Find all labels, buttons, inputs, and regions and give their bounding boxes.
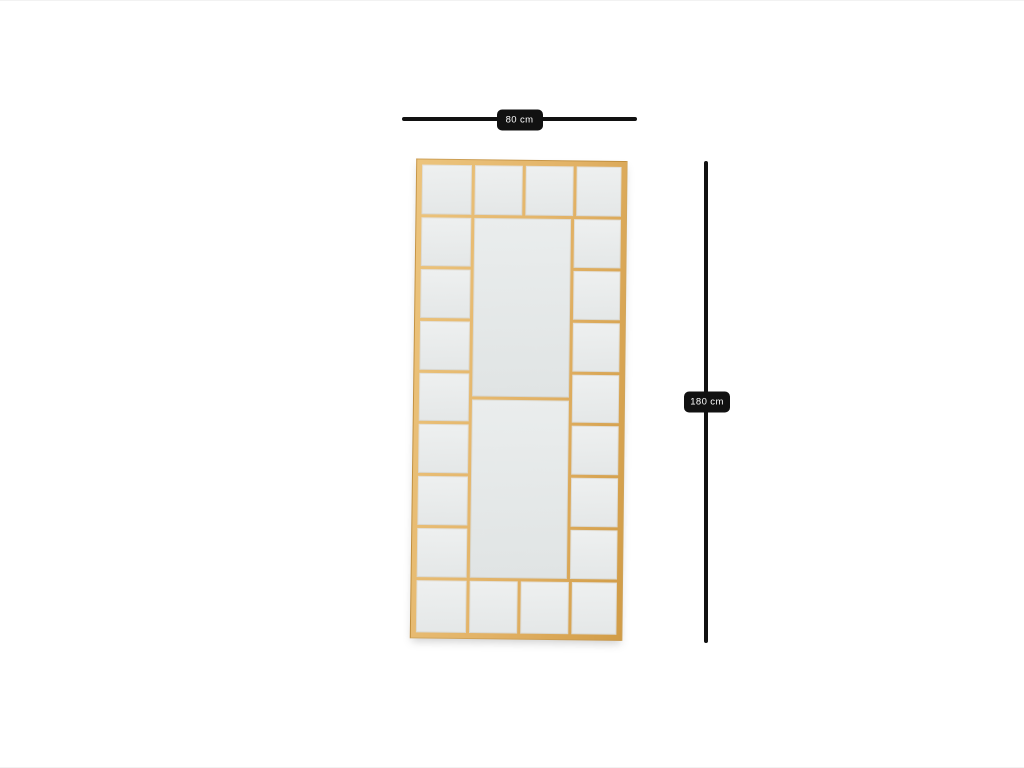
mirror-pane	[416, 580, 467, 633]
mirror-pane	[474, 165, 522, 215]
mirror-pane	[419, 321, 470, 370]
mirror-pane	[570, 530, 618, 580]
mirror-pane	[572, 322, 620, 371]
mirror-right-column	[570, 219, 621, 579]
product-dimension-diagram: 80 cm 180 cm	[0, 1, 1024, 767]
width-dimension-label: 80 cm	[497, 109, 543, 130]
mirror-pane	[419, 372, 470, 421]
mirror-pane	[525, 166, 573, 216]
mirror-center-panels	[470, 218, 571, 579]
mirror-pane	[571, 426, 619, 475]
mirror-pane	[417, 476, 468, 526]
height-dimension: 180 cm	[683, 161, 731, 643]
height-dimension-label: 180 cm	[684, 392, 730, 413]
mirror-pane	[520, 581, 569, 634]
mirror-bottom-row	[416, 580, 617, 635]
mirror-pane	[421, 165, 472, 215]
mirror-pane	[420, 269, 471, 318]
mirror-left-column	[417, 217, 472, 577]
mirror-pane	[472, 218, 571, 397]
width-dimension: 80 cm	[402, 109, 637, 130]
mirror-pane	[418, 424, 469, 474]
mirror-pane	[573, 271, 620, 320]
mirror-pane	[421, 217, 472, 266]
mirror-pane	[470, 399, 569, 579]
mirror-top-row	[421, 165, 621, 217]
mirror-pane	[417, 528, 468, 578]
mirror-product-image	[410, 158, 628, 640]
mirror-pane	[574, 219, 621, 268]
mirror-frame-grid	[416, 165, 622, 635]
mirror-pane	[572, 374, 620, 423]
mirror-pane	[571, 478, 619, 528]
mirror-pane	[469, 581, 518, 634]
mirror-pane	[576, 166, 621, 216]
mirror-middle-section	[417, 217, 621, 579]
mirror-pane	[571, 582, 617, 635]
